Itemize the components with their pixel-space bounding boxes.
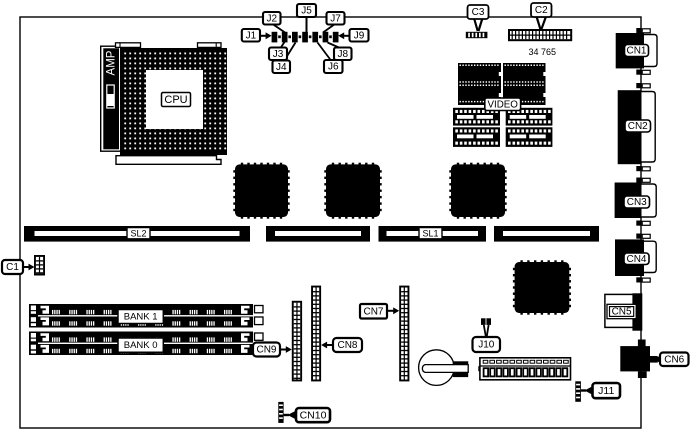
svg-text:J1: J1 <box>246 30 257 41</box>
svg-text:VIDEO: VIDEO <box>487 99 518 110</box>
svg-text:CN5: CN5 <box>612 307 632 318</box>
svg-text:SL1: SL1 <box>422 229 438 239</box>
svg-text:CPU: CPU <box>164 94 187 106</box>
svg-text:J8: J8 <box>337 49 348 60</box>
svg-text:CN7: CN7 <box>363 306 383 317</box>
svg-text:CN2: CN2 <box>628 121 648 132</box>
svg-text:J5: J5 <box>301 6 312 17</box>
svg-text:CN4: CN4 <box>626 254 646 265</box>
svg-text:C3: C3 <box>472 7 485 18</box>
svg-text:J9: J9 <box>354 30 365 41</box>
svg-text:BANK 1: BANK 1 <box>124 312 158 323</box>
svg-text:J4: J4 <box>276 62 287 73</box>
svg-text:CN6: CN6 <box>664 354 684 365</box>
svg-text:CN9: CN9 <box>256 345 276 356</box>
svg-text:J6: J6 <box>328 62 339 73</box>
svg-text:J11: J11 <box>598 385 614 397</box>
svg-text:BANK 0: BANK 0 <box>124 340 158 351</box>
svg-text:CN1: CN1 <box>626 46 646 57</box>
svg-text:SL2: SL2 <box>130 229 146 239</box>
svg-text:CN3: CN3 <box>627 197 647 208</box>
svg-text:J3: J3 <box>273 49 284 60</box>
svg-text:J7: J7 <box>330 13 341 24</box>
svg-text:AMP: AMP <box>106 50 118 75</box>
svg-text:CN8: CN8 <box>337 340 357 351</box>
svg-text:J10: J10 <box>478 340 495 351</box>
svg-text:CN10: CN10 <box>300 410 327 422</box>
svg-text:34 765: 34 765 <box>529 47 557 57</box>
svg-text:C2: C2 <box>535 5 548 16</box>
svg-text:J2: J2 <box>266 13 277 24</box>
svg-text:C1: C1 <box>6 262 19 273</box>
